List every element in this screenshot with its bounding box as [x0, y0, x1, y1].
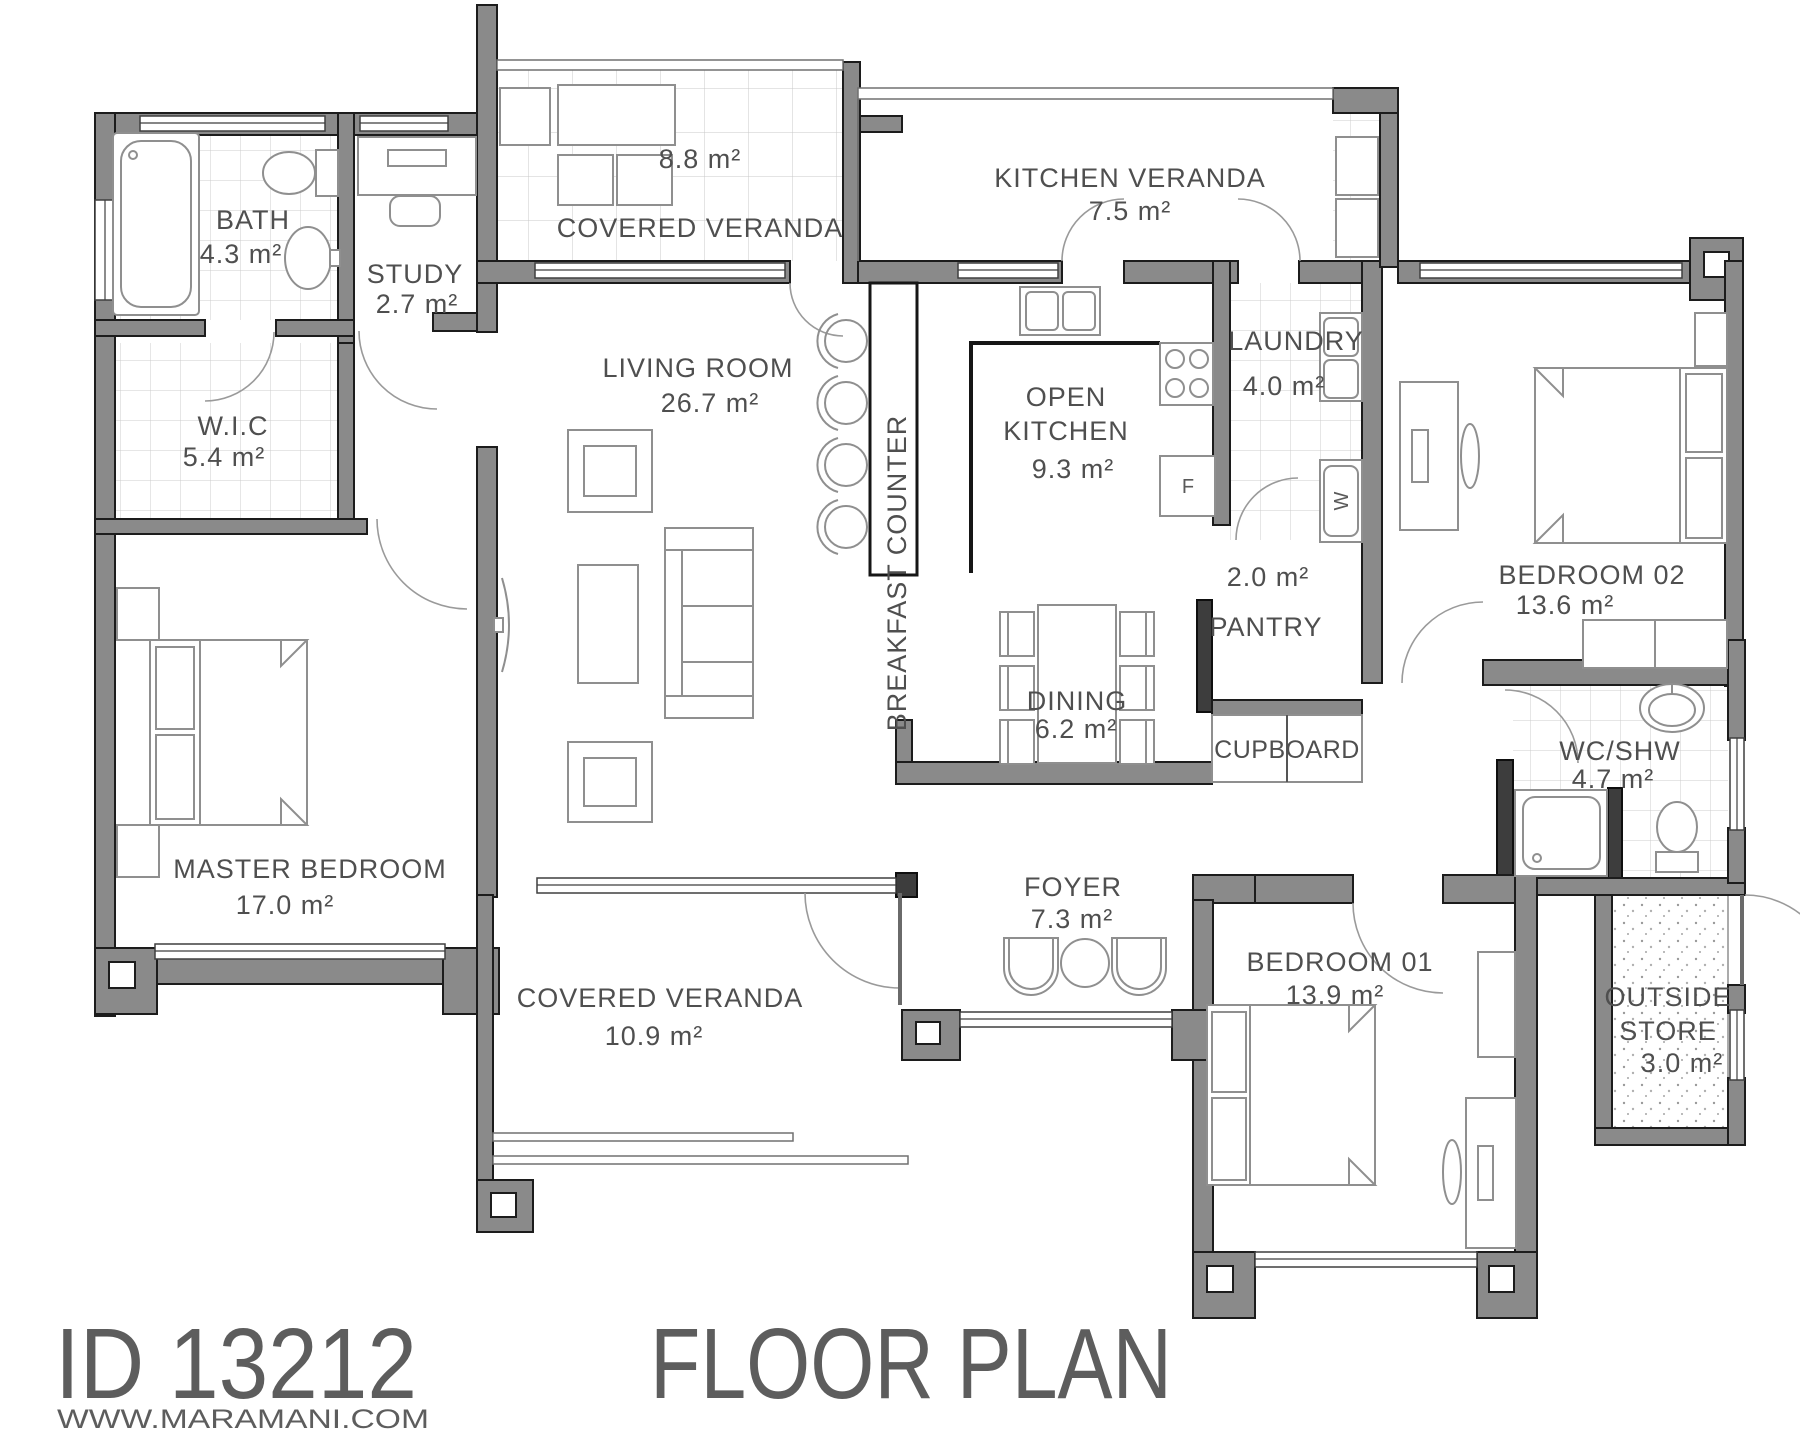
- cupboard-label: CUPBOARD: [1214, 736, 1360, 764]
- outside-store-label-1: OUTSIDE: [1604, 982, 1731, 1012]
- wc-shw-area: 4.7 m²: [1572, 764, 1655, 794]
- master-bedroom-furniture: [117, 588, 307, 877]
- pantry-label: PANTRY: [1209, 612, 1322, 642]
- wic-label: W.I.C: [198, 411, 269, 441]
- bar-stools: [817, 314, 867, 554]
- kitchen-veranda-area: 7.5 m²: [1089, 196, 1172, 226]
- laundry-label: LAUNDRY: [1228, 326, 1364, 356]
- foyer-furniture: [1004, 938, 1166, 995]
- covered-veranda-bottom-area: 10.9 m²: [605, 1021, 704, 1051]
- bedroom01-label: BEDROOM 01: [1246, 947, 1433, 977]
- study-area: 2.7 m²: [376, 289, 459, 319]
- toilet-bowl: [263, 152, 315, 194]
- foyer-table: [1061, 939, 1109, 987]
- pantry-area: 2.0 m²: [1227, 562, 1310, 592]
- washer-letter: W: [1331, 491, 1353, 510]
- wc-shw-label: WC/SHW: [1559, 736, 1680, 766]
- covered-veranda-top-label: COVERED VERANDA: [557, 213, 844, 243]
- bedroom02-label: BEDROOM 02: [1498, 560, 1685, 590]
- tall-cabinet: [1336, 199, 1378, 257]
- breakfast-counter-label: BREAKFAST COUNTER: [882, 415, 912, 732]
- outside-store-area: 3.0 m²: [1641, 1048, 1724, 1078]
- desk-chair: [1443, 1140, 1461, 1204]
- fridge-letter: F: [1182, 476, 1194, 498]
- living-room-furniture: [494, 430, 753, 822]
- wc-toilet-tank: [1656, 852, 1698, 872]
- living-room-label: LIVING ROOM: [602, 353, 793, 383]
- study-furniture: [358, 137, 476, 226]
- dining-label: DINING: [1027, 686, 1128, 716]
- living-room-area: 26.7 m²: [661, 388, 760, 418]
- open-kitchen-label-1: OPEN: [1026, 382, 1107, 412]
- bath-label: BATH: [216, 205, 290, 235]
- outside-store-label-2: STORE: [1619, 1016, 1717, 1046]
- page-title: FLOOR PLAN: [650, 1308, 1172, 1420]
- foyer-chair: [1004, 938, 1058, 995]
- foyer-chair: [1112, 938, 1166, 995]
- bathtub: [113, 133, 199, 315]
- desk-chair: [1461, 424, 1479, 488]
- wc-toilet-bowl: [1657, 802, 1697, 852]
- toilet-tank: [316, 150, 338, 196]
- armchair: [568, 742, 652, 822]
- floor-plan-page: F W: [0, 0, 1800, 1436]
- dining-area: 6.2 m²: [1035, 714, 1118, 744]
- foyer-area: 7.3 m²: [1031, 904, 1114, 934]
- room-labels: BATH 4.3 m² STUDY 2.7 m² W.I.C 5.4 m² 8.…: [173, 144, 1731, 1078]
- armchair: [568, 430, 652, 512]
- cabinet: [1478, 952, 1515, 1057]
- covered-veranda-bottom-label: COVERED VERANDA: [517, 983, 804, 1013]
- website: WWW.MARAMANI.COM: [57, 1404, 429, 1434]
- nightstand: [117, 588, 159, 640]
- nightstand: [1695, 313, 1727, 366]
- tall-cabinet: [1336, 137, 1378, 195]
- laundry-area: 4.0 m²: [1243, 371, 1326, 401]
- coffee-table: [578, 565, 638, 683]
- master-bedroom-area: 17.0 m²: [236, 890, 335, 920]
- sofa: [665, 528, 753, 718]
- master-bedroom-label: MASTER BEDROOM: [173, 854, 447, 884]
- floor-plan-canvas: F W: [0, 0, 1800, 1436]
- wic-area: 5.4 m²: [183, 442, 266, 472]
- study-label: STUDY: [367, 259, 464, 289]
- bedroom02-area: 13.6 m²: [1516, 590, 1615, 620]
- nightstand: [117, 825, 159, 877]
- shower-tray: [1515, 790, 1607, 876]
- footer: ID 13212 WWW.MARAMANI.COM FLOOR PLAN: [55, 1308, 1172, 1434]
- bath-area: 4.3 m²: [200, 239, 283, 269]
- study-chair: [390, 196, 440, 226]
- kitchen-sink: [1020, 287, 1100, 335]
- covered-veranda-top-area: 8.8 m²: [659, 144, 742, 174]
- bath-basin: [285, 227, 331, 289]
- foyer-label: FOYER: [1024, 872, 1122, 902]
- kitchen-veranda-label: KITCHEN VERANDA: [994, 163, 1266, 193]
- open-kitchen-label-2: KITCHEN: [1003, 416, 1129, 446]
- bedroom01-area: 13.9 m²: [1286, 980, 1385, 1010]
- open-kitchen-area: 9.3 m²: [1032, 454, 1115, 484]
